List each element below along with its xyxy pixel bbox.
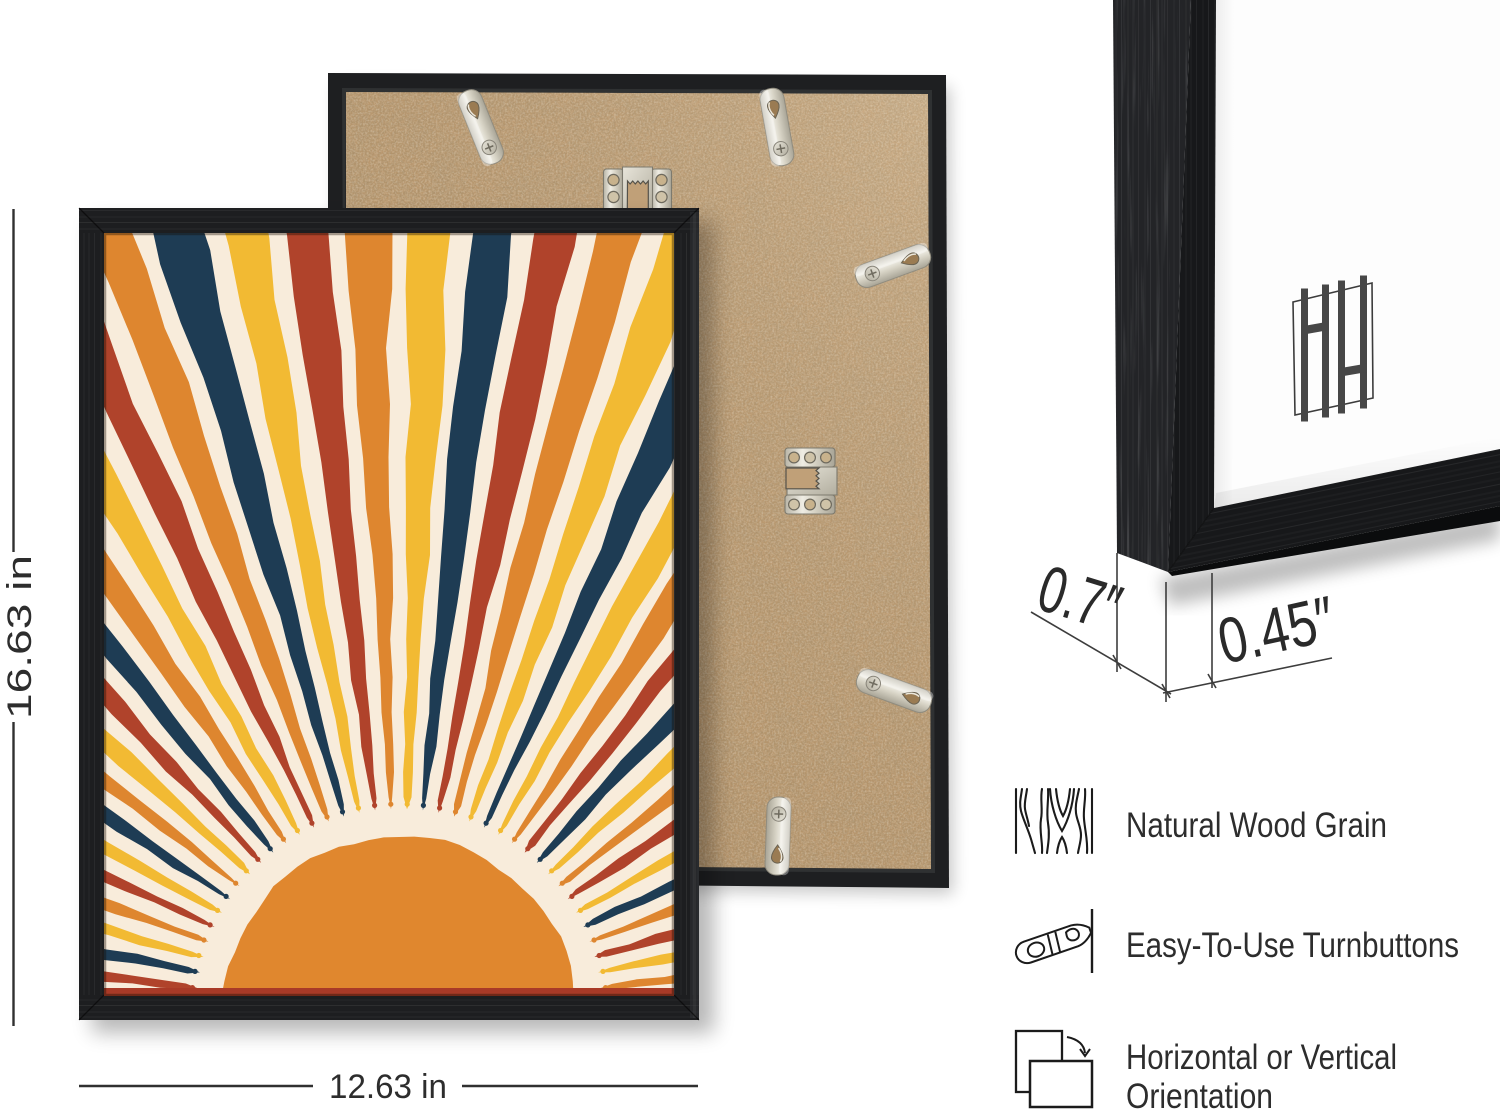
svg-text:Natural Wood Grain: Natural Wood Grain <box>1126 806 1387 845</box>
svg-text:Orientation: Orientation <box>1126 1077 1273 1110</box>
svg-text:16.63 in: 16.63 in <box>1 555 39 719</box>
svg-text:Easy-To-Use Turnbuttons: Easy-To-Use Turnbuttons <box>1126 926 1459 965</box>
svg-text:Horizontal or Vertical: Horizontal or Vertical <box>1126 1038 1397 1077</box>
svg-text:12.63 in: 12.63 in <box>329 1068 447 1106</box>
